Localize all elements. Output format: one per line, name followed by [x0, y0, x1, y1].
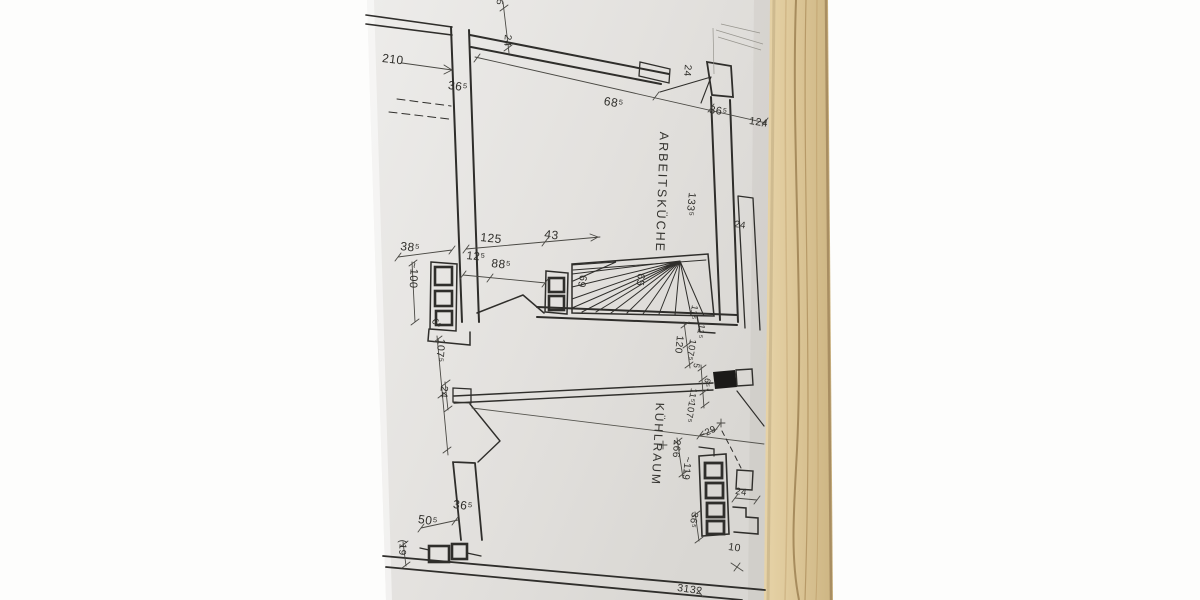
dim-label: 3132	[677, 583, 704, 597]
dim-label: 5	[495, 0, 504, 5]
dim-label: 65	[634, 273, 646, 287]
dim-label: 6⁵	[429, 317, 443, 331]
dim-label: (19	[396, 539, 407, 556]
dim-label: 210	[382, 52, 405, 67]
dim-label: 24	[735, 487, 748, 498]
dim-label: 107⁵	[684, 338, 697, 361]
dimension-labels-layer: 210 36⁵ 5 24 68⁵ 24 36⁵ 124 ARBEITSKÜCHE…	[0, 0, 1200, 600]
dim-label: 36⁵	[687, 511, 699, 528]
room-label-kuehlraum: KÜHLRAUM	[650, 402, 666, 486]
dim-label: 24	[501, 34, 512, 47]
dim-label: 6⁵	[702, 378, 712, 389]
dim-label: 38⁵	[400, 240, 421, 254]
dim-label: 125	[480, 231, 503, 245]
dim-label: 24	[438, 385, 449, 398]
dim-label: 69	[575, 274, 588, 288]
dim-label: 10	[728, 542, 742, 554]
dim-label: ~100	[407, 261, 419, 288]
dim-label: 50⁵	[417, 513, 438, 528]
dim-label: ~29	[698, 425, 718, 441]
dim-label: 12⁵	[466, 251, 486, 264]
dim-label: 266	[670, 439, 681, 458]
dim-label: 36⁵	[447, 79, 468, 94]
dim-label: 107⁵	[434, 338, 446, 363]
dim-label: ~119	[680, 456, 692, 481]
dim-label: 124	[748, 116, 768, 129]
dim-label: 68⁵	[603, 95, 624, 110]
dim-label: 43	[544, 228, 560, 241]
dim-label: 133⁵	[684, 192, 697, 217]
room-label-arbeitskueche: ARBEITSKÜCHE	[653, 132, 670, 254]
dim-label: 120	[672, 335, 684, 354]
dim-label: 36⁵	[452, 498, 473, 513]
dim-label: 11⁵	[688, 304, 699, 320]
photo-of-floor-plan: 210 36⁵ 5 24 68⁵ 24 36⁵ 124 ARBEITSKÜCHE…	[0, 0, 1200, 600]
dim-label: 24	[734, 220, 747, 231]
dim-label: 36⁵	[708, 105, 728, 119]
dim-label: 11⁵	[695, 323, 706, 339]
dim-label: 88⁵	[491, 257, 512, 271]
dim-label: 24	[681, 64, 692, 77]
dim-label: 5	[692, 363, 701, 370]
dim-label: 107⁵	[683, 400, 696, 423]
